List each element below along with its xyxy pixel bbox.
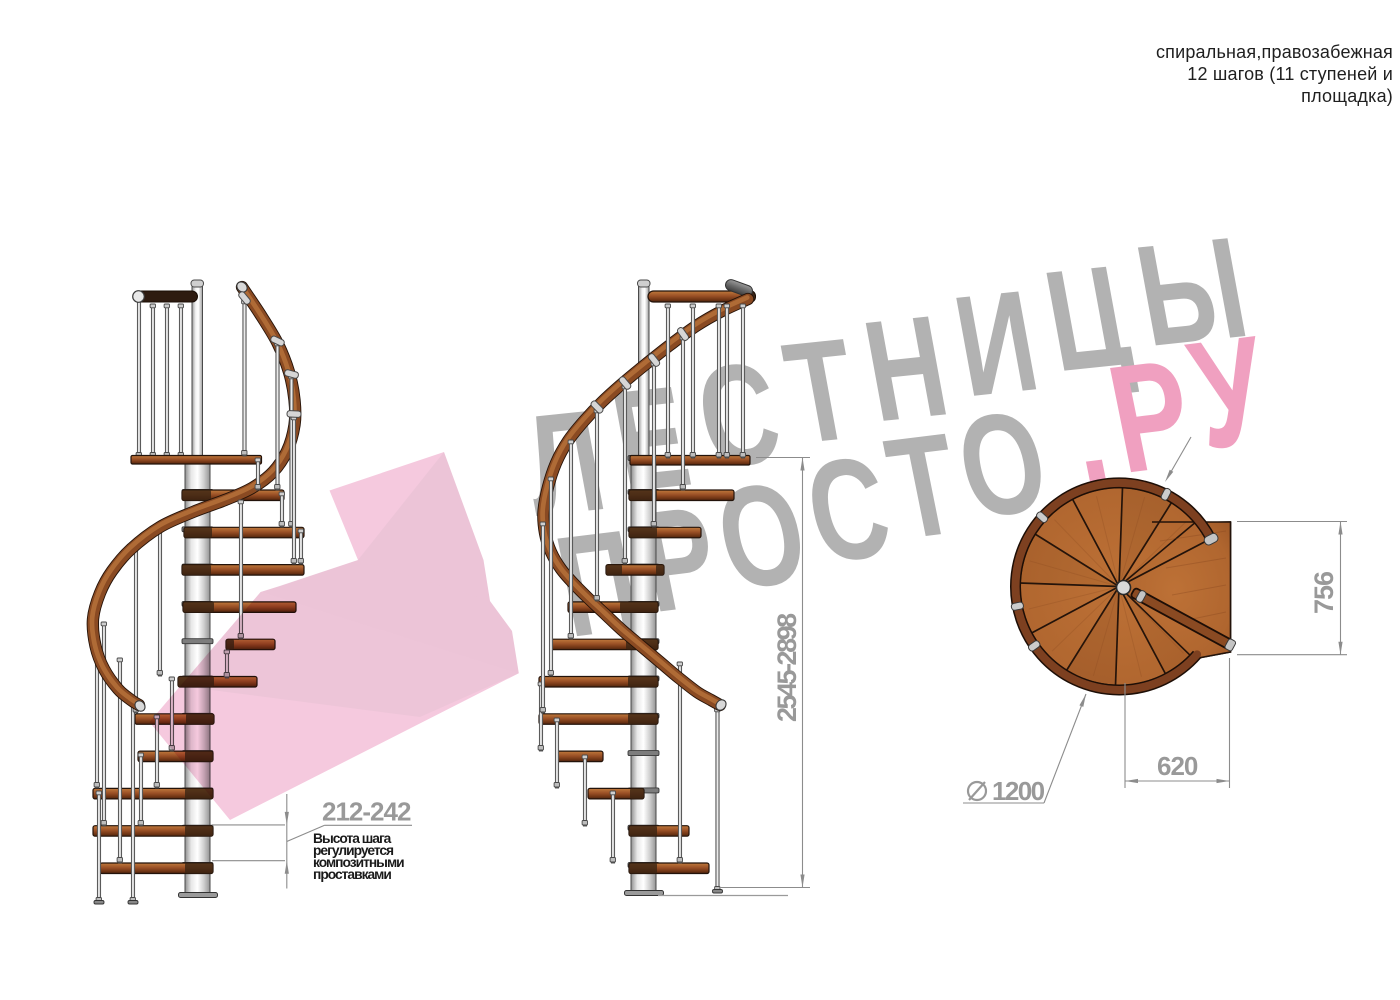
svg-text:620: 620 [1157, 751, 1198, 781]
svg-text:проставками: проставками [313, 867, 391, 882]
svg-text:1200: 1200 [992, 776, 1045, 806]
svg-text:2545-2898: 2545-2898 [772, 613, 802, 722]
svg-text:12 шагов (11 ступеней и: 12 шагов (11 ступеней и [1187, 64, 1393, 84]
svg-text:756: 756 [1309, 571, 1339, 614]
svg-text:площадка): площадка) [1301, 86, 1393, 106]
svg-text:212-242: 212-242 [322, 797, 411, 827]
svg-text:спиральная,правозабежная: спиральная,правозабежная [1156, 42, 1393, 62]
